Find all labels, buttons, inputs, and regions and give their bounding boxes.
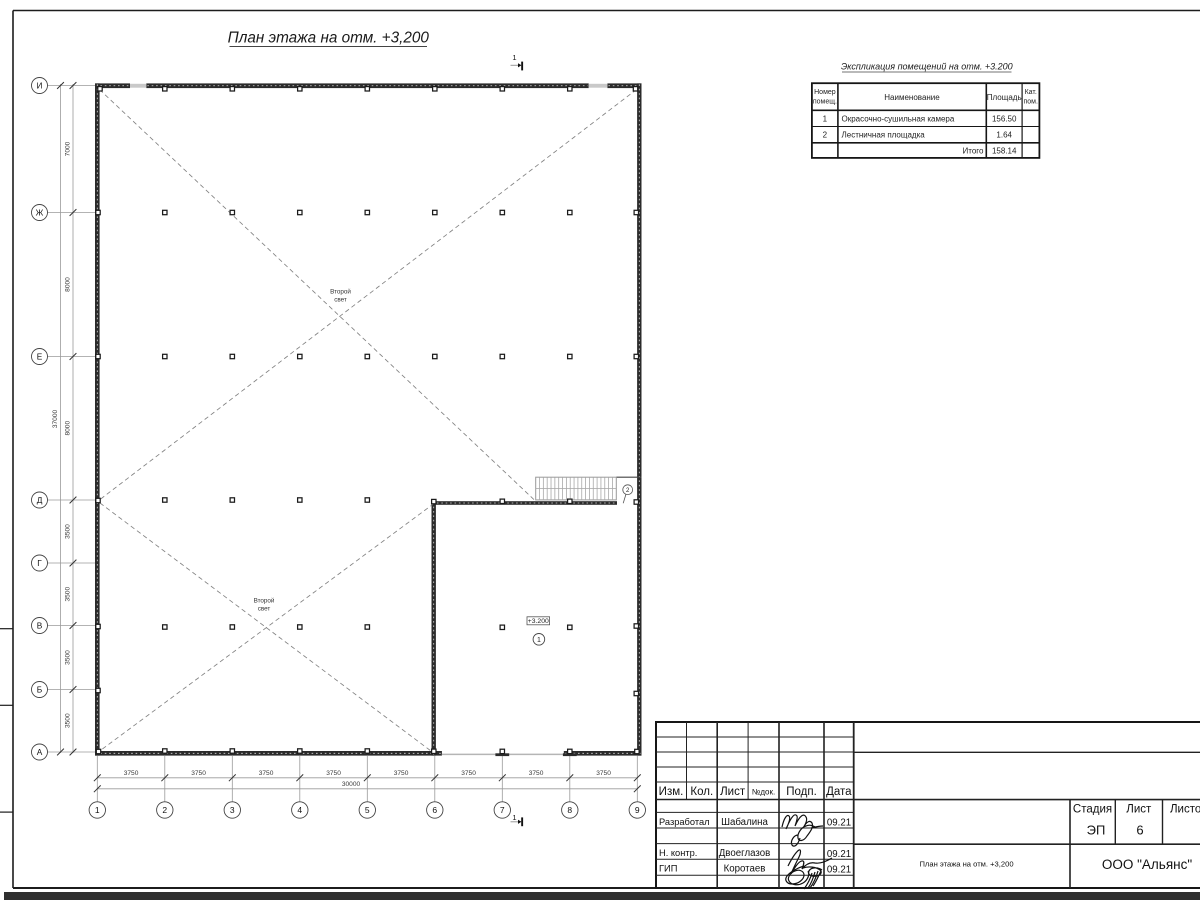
svg-text:3750: 3750 (529, 770, 544, 777)
svg-text:8: 8 (567, 805, 572, 815)
svg-text:Двоеглазов: Двоеглазов (719, 848, 771, 859)
svg-text:помещ.: помещ. (813, 99, 837, 106)
svg-text:И: И (37, 80, 43, 90)
svg-text:Лестничная площадка: Лестничная площадка (842, 131, 926, 140)
svg-text:Коротаев: Коротаев (724, 864, 766, 875)
svg-text:Г: Г (37, 558, 42, 568)
svg-text:2: 2 (162, 805, 167, 815)
svg-text:Наименование: Наименование (884, 93, 940, 102)
svg-text:Второй: Второй (254, 597, 275, 605)
svg-text:3750: 3750 (394, 770, 409, 777)
svg-text:158.14: 158.14 (992, 146, 1017, 155)
svg-text:+3.200: +3.200 (528, 618, 549, 625)
svg-text:ООО "Альянс": ООО "Альянс" (1102, 857, 1192, 872)
svg-text:3750: 3750 (326, 770, 341, 777)
svg-text:4: 4 (297, 805, 302, 815)
svg-text:3750: 3750 (259, 770, 274, 777)
svg-text:Д: Д (37, 495, 43, 505)
svg-text:8000: 8000 (65, 277, 72, 292)
svg-text:Второй: Второй (330, 288, 351, 296)
svg-text:5: 5 (365, 805, 370, 815)
svg-text:3500: 3500 (65, 587, 72, 602)
svg-text:3750: 3750 (596, 770, 611, 777)
svg-text:Шабалина: Шабалина (721, 817, 768, 828)
svg-text:1: 1 (537, 637, 541, 644)
svg-text:1: 1 (512, 53, 516, 62)
svg-text:3750: 3750 (124, 770, 139, 777)
svg-text:План этажа на отм. +3,200: План этажа на отм. +3,200 (919, 860, 1013, 869)
svg-text:Н. контр.: Н. контр. (659, 848, 697, 858)
svg-text:Ж: Ж (36, 207, 44, 217)
svg-text:3500: 3500 (65, 650, 72, 665)
svg-text:№док.: №док. (752, 788, 775, 797)
svg-text:В: В (37, 620, 43, 630)
svg-text:Стадия: Стадия (1073, 804, 1112, 816)
svg-text:1: 1 (823, 115, 828, 124)
svg-text:Дата: Дата (826, 786, 852, 798)
svg-text:А: А (37, 747, 43, 757)
svg-text:7000: 7000 (65, 141, 72, 156)
svg-text:Изм.: Изм. (659, 786, 684, 798)
svg-text:3500: 3500 (65, 713, 72, 728)
svg-text:156.50: 156.50 (992, 115, 1017, 124)
svg-text:3: 3 (230, 805, 235, 815)
svg-text:Лист: Лист (1126, 804, 1152, 816)
svg-text:1.64: 1.64 (996, 131, 1012, 140)
svg-text:свет: свет (334, 297, 347, 304)
svg-text:Б: Б (37, 684, 43, 694)
svg-text:Окрасочно-сушильная камера: Окрасочно-сушильная камера (842, 115, 955, 124)
svg-text:ГИП: ГИП (659, 864, 677, 874)
svg-text:Номер: Номер (814, 89, 836, 96)
svg-text:свет: свет (258, 606, 271, 613)
svg-text:2: 2 (823, 131, 828, 140)
svg-text:09.21: 09.21 (827, 865, 851, 876)
svg-text:1: 1 (95, 805, 100, 815)
svg-text:пом.: пом. (1023, 99, 1037, 106)
svg-text:3750: 3750 (191, 770, 206, 777)
svg-text:3500: 3500 (65, 524, 72, 539)
svg-text:ЭП: ЭП (1087, 823, 1106, 838)
svg-text:9: 9 (635, 805, 640, 815)
svg-text:Листов: Листов (1170, 804, 1200, 816)
svg-text:37000: 37000 (52, 410, 59, 429)
svg-text:3750: 3750 (461, 770, 476, 777)
svg-text:09.21: 09.21 (827, 818, 851, 829)
svg-text:7: 7 (500, 805, 505, 815)
svg-text:Кол.: Кол. (690, 786, 713, 798)
svg-text:Разработал: Разработал (659, 817, 710, 827)
svg-text:Лист: Лист (720, 786, 746, 798)
svg-text:6: 6 (1136, 823, 1143, 838)
svg-text:Экспликация помещений на отм.: Экспликация помещений на отм. +3.200 (841, 62, 1013, 72)
svg-text:1: 1 (512, 813, 516, 822)
svg-text:6: 6 (432, 805, 437, 815)
svg-text:8000: 8000 (65, 421, 72, 436)
svg-text:План этажа на отм. +3,200: План этажа на отм. +3,200 (228, 30, 430, 47)
svg-text:30000: 30000 (342, 781, 361, 788)
svg-text:Подп.: Подп. (786, 786, 817, 798)
svg-text:Кат.: Кат. (1025, 89, 1037, 96)
svg-text:Итого: Итого (963, 146, 985, 155)
svg-text:Е: Е (37, 351, 43, 361)
svg-text:Площадь: Площадь (987, 93, 1022, 102)
